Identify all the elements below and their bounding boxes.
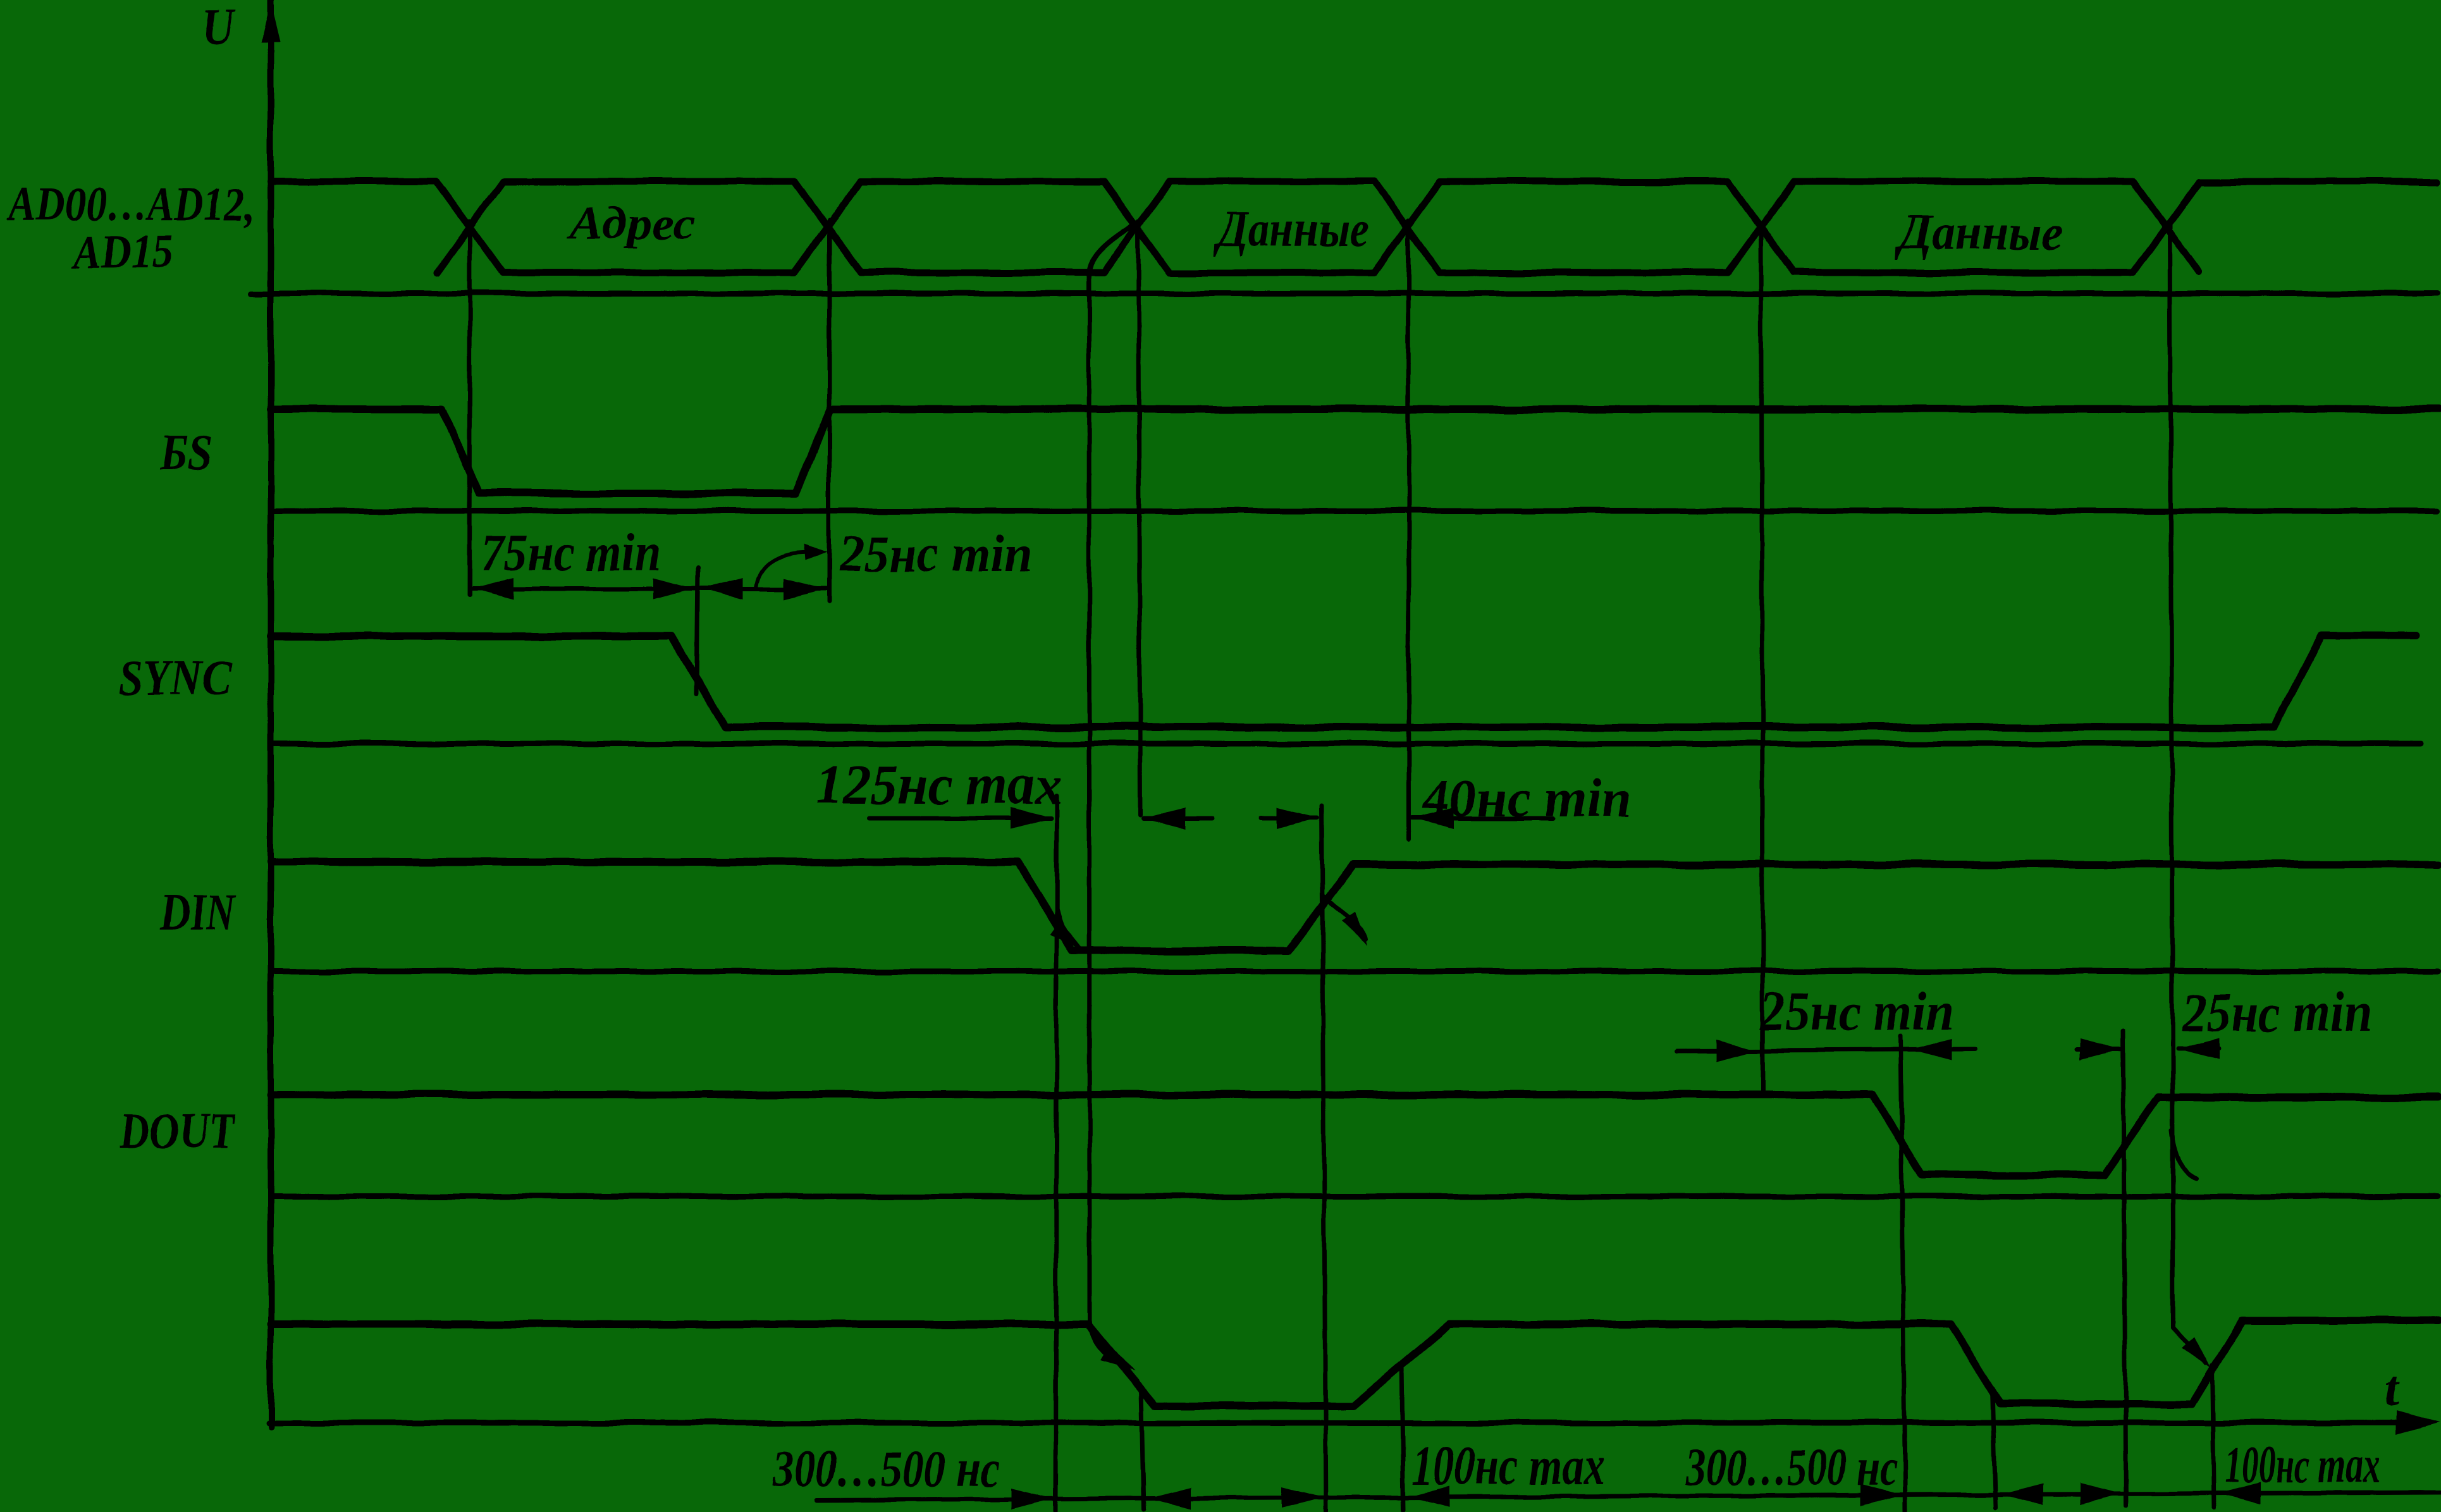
svg-text:AD00…AD12,: AD00…AD12, <box>7 178 255 231</box>
svg-text:100нс max: 100нс max <box>1411 1435 1604 1497</box>
svg-text:25нс min: 25нс min <box>2181 982 2372 1043</box>
svg-text:40нс min: 40нс min <box>1422 769 1632 828</box>
svg-text:25нс min: 25нс min <box>1759 981 1954 1042</box>
svg-text:Адрес: Адрес <box>567 198 695 249</box>
svg-text:25нс min: 25нс min <box>838 524 1032 583</box>
svg-text:Данные: Данные <box>1894 205 2063 261</box>
svg-text:100нс max: 100нс max <box>2225 1435 2380 1494</box>
svg-text:БS: БS <box>159 425 212 481</box>
svg-text:AD15: AD15 <box>71 225 173 278</box>
svg-text:DIN: DIN <box>160 883 236 942</box>
svg-text:125нс max: 125нс max <box>816 754 1062 816</box>
svg-text:300…500 нс: 300…500 нс <box>772 1440 999 1497</box>
svg-text:300…500 нс: 300…500 нс <box>1685 1438 1897 1497</box>
svg-text:75нс min: 75нс min <box>481 524 661 582</box>
svg-text:t: t <box>2384 1361 2400 1417</box>
svg-text:DOUT: DOUT <box>120 1103 236 1159</box>
svg-text:Данные: Данные <box>1214 201 1369 256</box>
svg-text:SYNC: SYNC <box>119 650 232 706</box>
svg-text:U: U <box>202 0 235 55</box>
